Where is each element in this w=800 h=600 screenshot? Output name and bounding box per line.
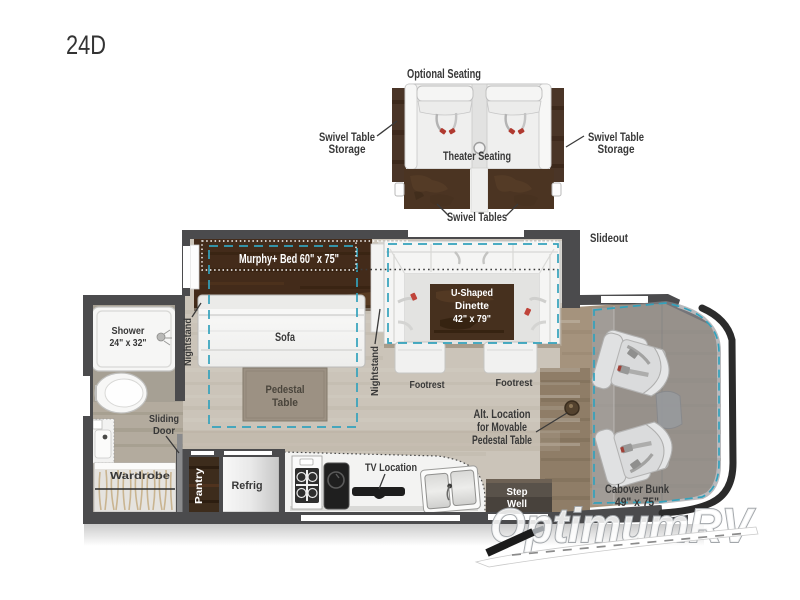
- svg-text:Sliding: Sliding: [149, 413, 179, 425]
- svg-text:42" x 79": 42" x 79": [453, 313, 491, 325]
- svg-text:Pedestal: Pedestal: [266, 384, 305, 396]
- svg-text:U-Shaped: U-Shaped: [451, 287, 493, 299]
- svg-text:Sofa: Sofa: [275, 332, 295, 344]
- svg-text:Door: Door: [153, 425, 175, 437]
- svg-text:Storage: Storage: [598, 144, 635, 156]
- svg-text:Theater Seating: Theater Seating: [443, 149, 511, 163]
- svg-text:24D: 24D: [66, 30, 106, 60]
- svg-text:Swivel Tables: Swivel Tables: [447, 210, 507, 224]
- svg-text:Footrest: Footrest: [410, 379, 445, 391]
- svg-text:Pantry: Pantry: [193, 468, 205, 504]
- svg-text:Shower: Shower: [112, 325, 145, 337]
- svg-text:Murphy+ Bed 60" x 75": Murphy+ Bed 60" x 75": [239, 252, 339, 266]
- svg-text:Nightstand: Nightstand: [183, 318, 194, 366]
- svg-text:Storage: Storage: [329, 144, 366, 156]
- svg-text:Nightstand: Nightstand: [370, 346, 381, 396]
- svg-text:TV Location: TV Location: [365, 462, 417, 474]
- svg-text:Optional Seating: Optional Seating: [407, 67, 481, 81]
- svg-text:Alt. Location: Alt. Location: [474, 409, 531, 421]
- svg-text:Swivel Table: Swivel Table: [588, 132, 644, 144]
- svg-text:Step: Step: [507, 486, 528, 498]
- svg-text:Footrest: Footrest: [496, 377, 533, 389]
- svg-text:Pedestal Table: Pedestal Table: [472, 435, 532, 447]
- svg-text:Wardrobe: Wardrobe: [110, 470, 170, 482]
- svg-text:Swivel Table: Swivel Table: [319, 132, 375, 144]
- svg-text:Table: Table: [272, 397, 298, 409]
- svg-text:Cabover Bunk: Cabover Bunk: [605, 484, 669, 496]
- svg-text:Slideout: Slideout: [590, 233, 628, 245]
- svg-text:Refrig: Refrig: [232, 480, 263, 492]
- svg-text:for Movable: for Movable: [477, 422, 527, 434]
- svg-text:Dinette: Dinette: [455, 300, 489, 312]
- svg-text:24" x 32": 24" x 32": [110, 337, 147, 349]
